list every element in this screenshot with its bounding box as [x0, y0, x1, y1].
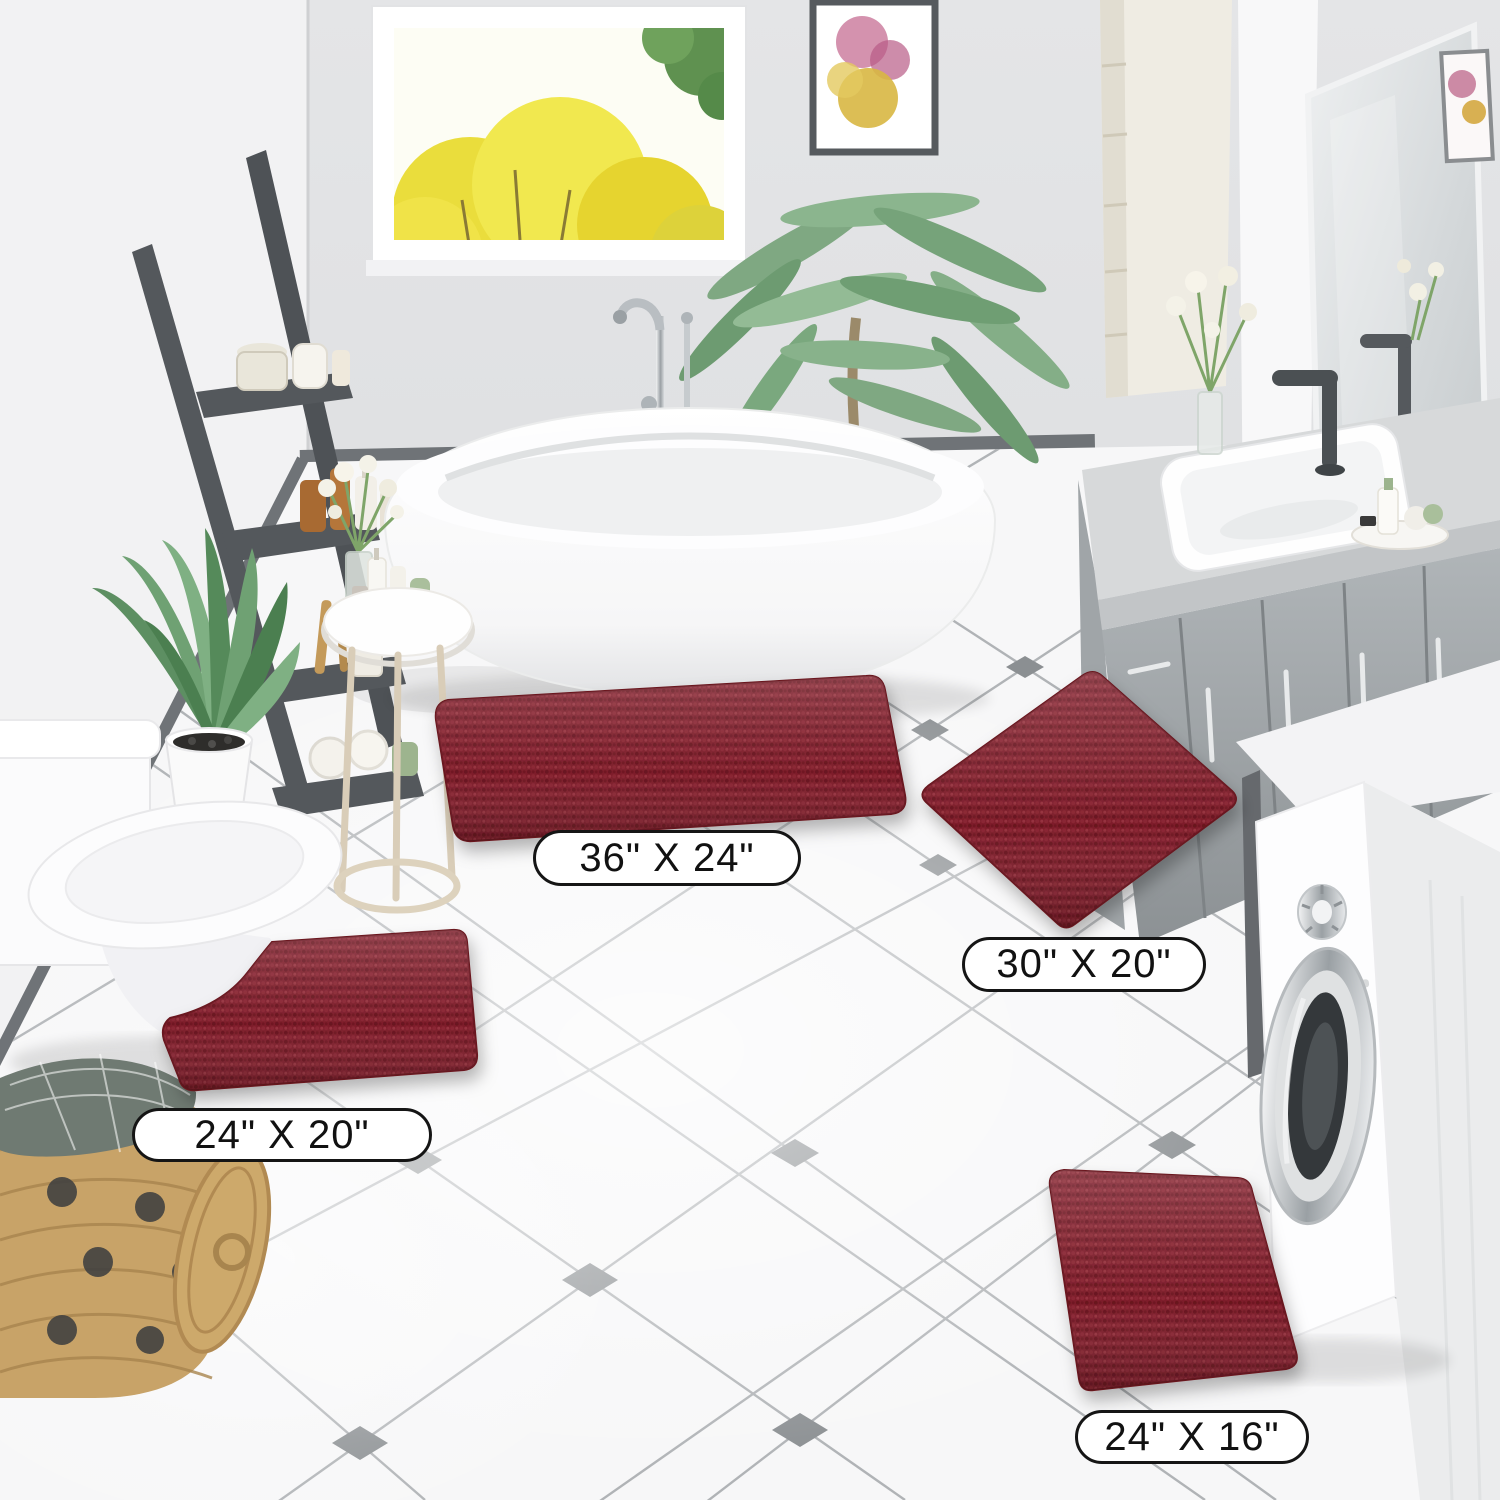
rug-36x24 — [436, 676, 906, 841]
bathroom-scene: 36" X 24" 30" X 20" 24" X 20" 24" X 16" — [0, 0, 1500, 1500]
size-label-30x20: 30" X 20" — [962, 937, 1206, 992]
scene-illustration — [0, 0, 1500, 1500]
size-label-24x20: 24" X 20" — [132, 1108, 432, 1162]
size-label-24x16: 24" X 16" — [1075, 1410, 1309, 1464]
washer-dial — [1298, 885, 1346, 939]
window — [366, 6, 752, 313]
window-sill — [366, 260, 752, 276]
framed-art — [813, 2, 935, 152]
size-label-36x24: 36" X 24" — [533, 830, 801, 886]
tall-cabinet — [1100, 0, 1232, 398]
